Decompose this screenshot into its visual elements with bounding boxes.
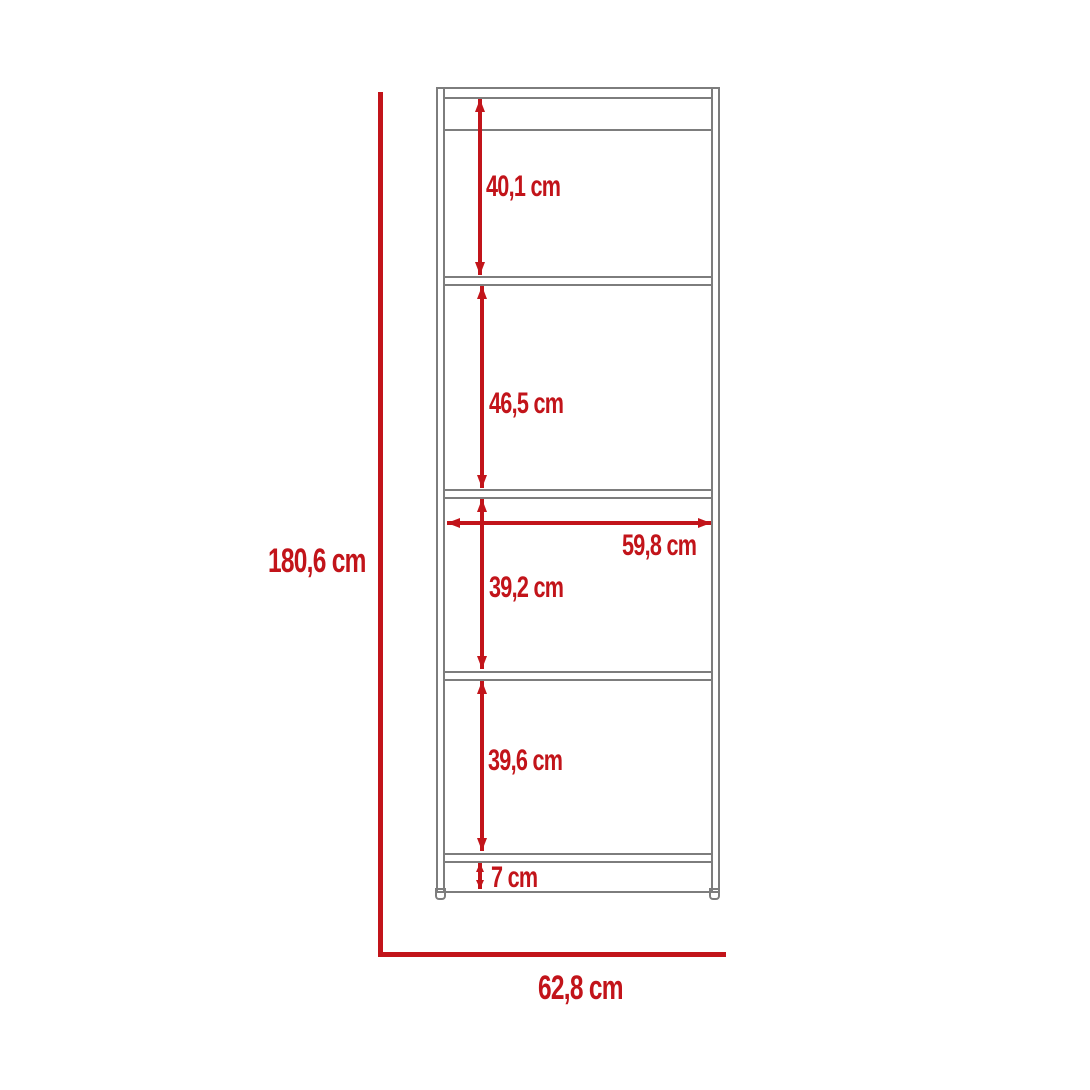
dim-label-total-width: 62,8 cm (538, 971, 623, 1005)
bottom-panel-top-line (445, 853, 711, 855)
cabinet-right-inner-edge (711, 87, 713, 893)
dimension-diagram: 40,1 cm 46,5 cm 59,8 cm 39,2 cm 39,6 cm … (0, 0, 1090, 1090)
dim-label-fourth-opening: 39,6 cm (488, 746, 562, 776)
dim-arrow-base-height (478, 863, 482, 889)
cabinet-left-outer-edge (436, 87, 438, 893)
dim-arrow-top-opening (478, 99, 482, 275)
cabinet-top-edge (436, 87, 720, 89)
cabinet-right-outer-edge (718, 87, 720, 893)
overall-height-line (378, 92, 383, 957)
dim-label-total-height: 180,6 cm (268, 544, 366, 578)
cabinet-top-rail-line (445, 129, 711, 131)
bottom-panel-bottom-line (445, 861, 711, 863)
overall-width-line (378, 952, 726, 957)
shelf-1-top-line (445, 276, 711, 278)
dim-label-base-height: 7 cm (491, 863, 537, 893)
dim-arrow-inner-width (447, 521, 711, 525)
dim-arrow-second-opening (480, 286, 484, 488)
dim-arrow-third-opening (480, 499, 484, 669)
dim-label-inner-width: 59,8 cm (622, 531, 696, 561)
dim-label-second-opening: 46,5 cm (489, 389, 563, 419)
dim-label-top-opening: 40,1 cm (486, 172, 560, 202)
shelf-3-top-line (445, 671, 711, 673)
cabinet-top-panel-underside (445, 97, 711, 99)
cabinet-bottom-edge (436, 891, 720, 893)
dim-arrow-fourth-opening (480, 681, 484, 851)
shelf-2-top-line (445, 489, 711, 491)
dim-label-third-opening: 39,2 cm (489, 573, 563, 603)
